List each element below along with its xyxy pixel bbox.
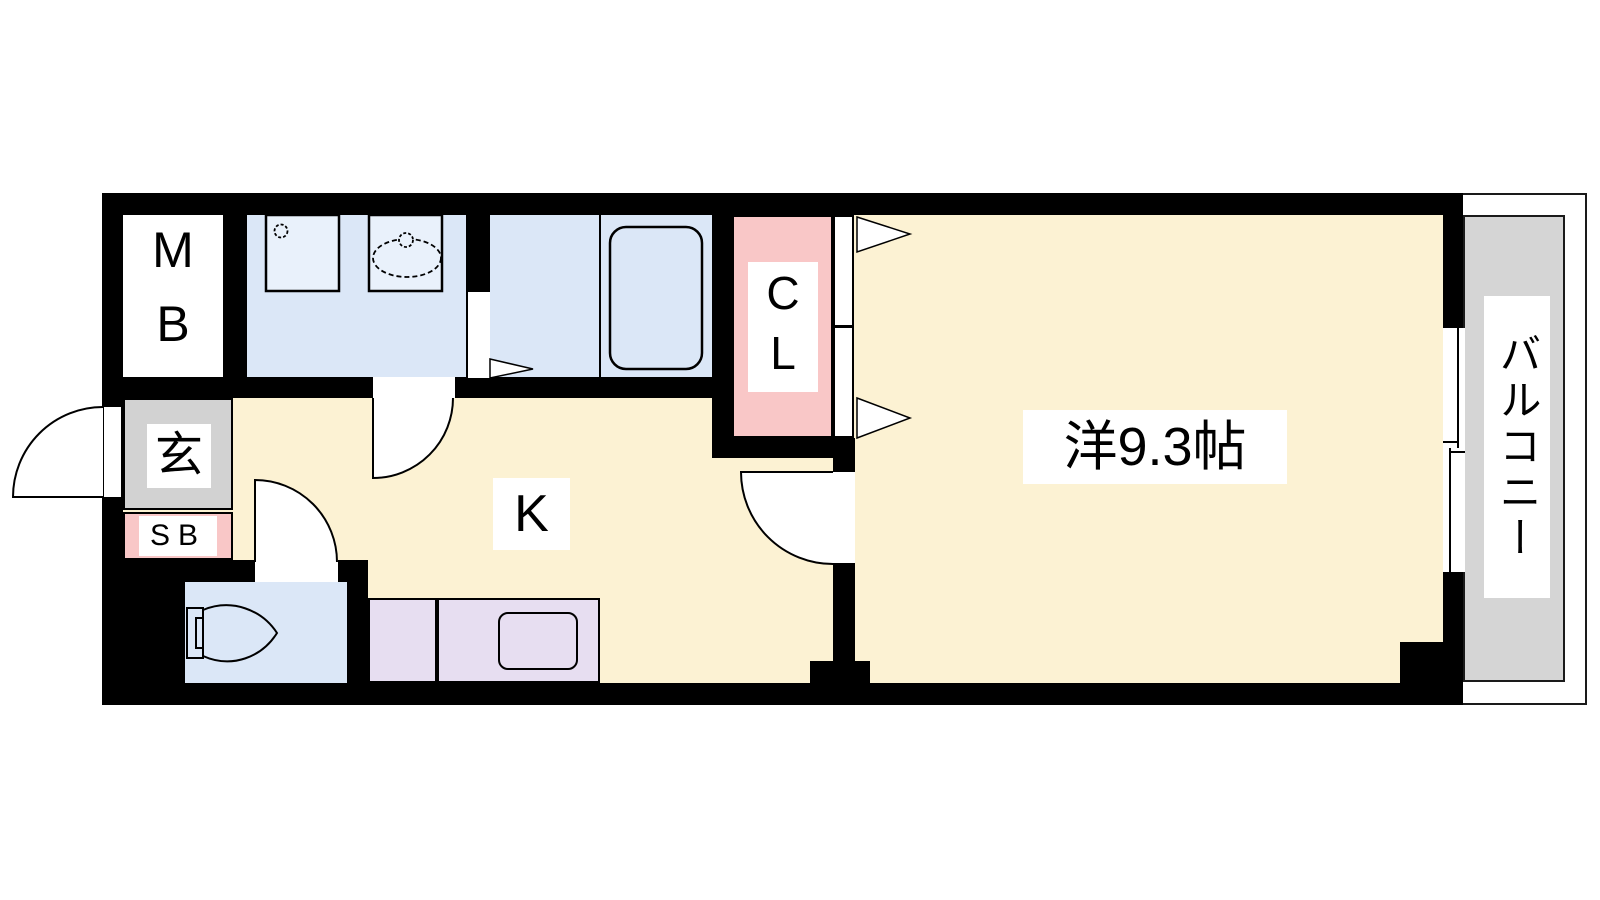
wall-bathroom-bottom: [466, 377, 732, 398]
washroom-door-opening: [373, 377, 455, 398]
wall-mb-washroom: [223, 193, 247, 398]
room-label-closet: CL: [748, 262, 818, 392]
entrance-door-leaf: [102, 407, 123, 497]
wall-block-bottom-left: [102, 560, 185, 705]
closet-door-panel-bottom: [833, 326, 854, 438]
room-label-balcony: バルコニー: [1484, 296, 1550, 598]
closet-door-panel-top: [833, 215, 854, 327]
kitchen-counter-left: [368, 598, 437, 683]
window-opening: [1443, 328, 1465, 572]
entrance-door-swing: [13, 407, 103, 497]
room-bathroom: [490, 215, 712, 378]
room-label-meter-box: MB: [123, 215, 223, 377]
toilet-door-opening: [255, 560, 338, 582]
kitchen-sink: [498, 612, 578, 670]
wall-bottom: [102, 683, 1463, 705]
room-washroom: [247, 215, 466, 378]
room-label-entrance: 玄: [147, 424, 211, 488]
wall-bathroom-closet: [712, 193, 732, 458]
wall-toilet-right: [347, 560, 368, 683]
room-label-shoe-box: SB: [139, 516, 217, 556]
room-label-kitchen: K: [493, 478, 570, 550]
wall-top: [102, 193, 1463, 215]
bathroom-partition-line: [599, 215, 601, 378]
entrance-door-swing-arc: [13, 407, 103, 497]
wall-closet-bottom: [712, 438, 855, 458]
western-room-door-opening: [833, 472, 855, 563]
floor-plan: MB CL 玄 SB K 洋9.3帖 バルコニー: [0, 0, 1600, 900]
room-toilet: [185, 582, 347, 683]
wall-pillar-bottom-right: [1400, 642, 1443, 683]
room-label-western-room: 洋9.3帖: [1023, 410, 1287, 484]
wall-bump: [810, 661, 870, 683]
bathroom-door-opening: [468, 292, 490, 378]
